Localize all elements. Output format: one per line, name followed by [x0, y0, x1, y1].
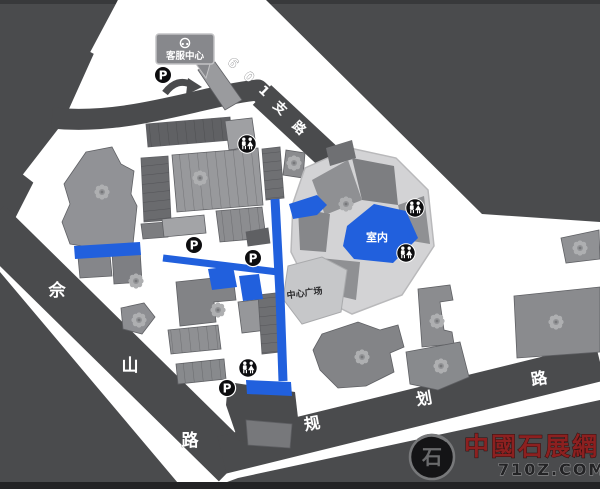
top-border: [0, 0, 600, 4]
bottom-border: [0, 482, 600, 489]
highlight-building: [208, 266, 237, 290]
watermark-emblem-char: 石: [421, 445, 442, 469]
parking-badge-label: P: [223, 382, 232, 396]
headset-icon-dot: [182, 43, 184, 45]
tree-icon: [94, 184, 109, 199]
watermark-site-url: 710Z.COM: [498, 460, 600, 479]
parking-badge-label: P: [249, 252, 258, 266]
building-stalls: [172, 148, 263, 212]
highlight-bar: [246, 380, 292, 396]
building-stalls: [141, 156, 171, 222]
building: [246, 420, 292, 448]
tree-icon: [210, 302, 225, 317]
highlight-building: [239, 274, 263, 301]
tree-icon: [338, 196, 353, 211]
service-center-label: 客服中心: [165, 50, 205, 62]
guihua-road-char: 规: [303, 413, 322, 434]
building-stalls: [168, 325, 221, 354]
toilet-icon: [238, 135, 256, 153]
indoor-label: 室内: [366, 230, 388, 244]
toilet-icon: [406, 199, 424, 217]
tree-icon: [433, 358, 448, 373]
sheshan-road-char: 佘: [48, 280, 67, 301]
watermark-site-name: 中國石展網: [464, 432, 599, 461]
toilet-icon: [239, 359, 257, 377]
guihua-road-char: 划: [415, 388, 434, 409]
site-map: 6 0 1 支 路 佘 山 路 规 划 路 中心广场 室内 客服中心 P P P…: [0, 0, 600, 489]
tree-icon: [128, 273, 143, 288]
watermark: 石 中國石展網 710Z.COM: [410, 432, 600, 479]
tree-icon: [429, 313, 444, 328]
building: [162, 215, 206, 237]
tree-icon: [572, 240, 587, 255]
parking-badge-label: P: [190, 239, 199, 253]
tree-icon: [548, 314, 563, 329]
sheshan-road-char: 山: [122, 356, 139, 376]
tree-icon: [192, 170, 207, 185]
parking-badge-label: P: [159, 69, 168, 83]
headset-icon-dot: [186, 43, 188, 45]
sheshan-road-char: 路: [182, 430, 200, 451]
tree-icon: [286, 155, 301, 170]
map-canvas: 6 0 1 支 路 佘 山 路 规 划 路 中心广场 室内 客服中心 P P P…: [0, 0, 600, 489]
toilet-icon: [397, 244, 415, 262]
tree-icon: [354, 349, 369, 364]
tree-icon: [131, 312, 146, 327]
